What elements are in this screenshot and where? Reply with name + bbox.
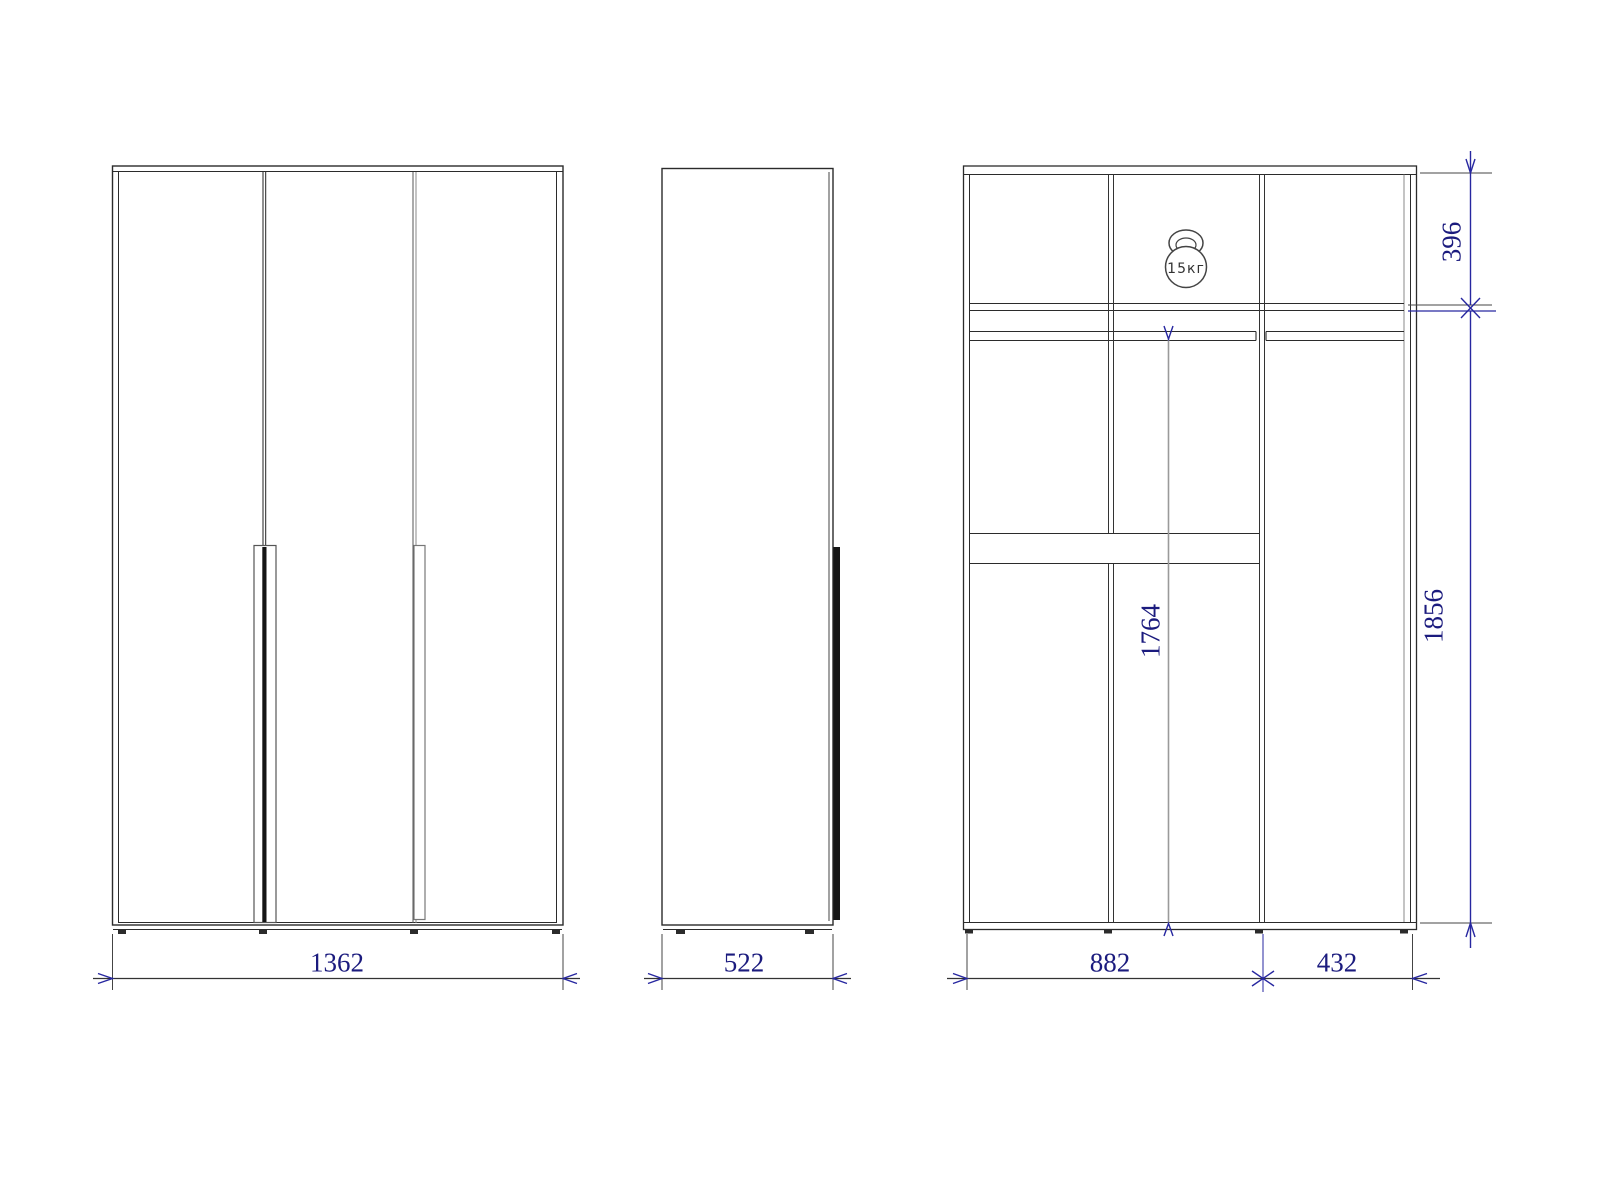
section-foot (1255, 930, 1263, 934)
side-handle-profile (834, 547, 841, 920)
handle-right (414, 546, 425, 920)
dim-label-cabinet-height: 1856 (1421, 589, 1448, 643)
dim-label-section-right-width: 432 (1317, 950, 1358, 977)
dim-label-top-section-height: 396 (1439, 222, 1466, 263)
front-foot (259, 930, 267, 935)
front-foot (410, 930, 418, 935)
dim-label-front-width: 1362 (310, 950, 364, 977)
side-foot (805, 930, 814, 935)
dim-label-interior-height: 1764 (1138, 604, 1165, 658)
front-view (113, 166, 564, 934)
dim-label-section-left-width: 882 (1090, 950, 1131, 977)
drawing-linework (0, 0, 1600, 1200)
dim-label-side-depth: 522 (724, 950, 765, 977)
max-load-label: 15кг (1167, 261, 1205, 277)
section-foot (1104, 930, 1112, 934)
dimension-right-heights (1408, 151, 1496, 948)
section-foot (1400, 930, 1408, 934)
front-foot (118, 930, 126, 935)
front-foot (552, 930, 560, 935)
dimension-bottom-widths (93, 934, 1440, 992)
side-view (662, 169, 840, 935)
handle-left-groove (262, 547, 266, 922)
front-view-outline (113, 166, 564, 925)
section-foot (965, 930, 973, 934)
drawing-canvas: 1362 522 882 432 396 1856 1764 15кг (0, 0, 1600, 1200)
side-foot (676, 930, 685, 935)
side-view-outline (662, 169, 833, 926)
